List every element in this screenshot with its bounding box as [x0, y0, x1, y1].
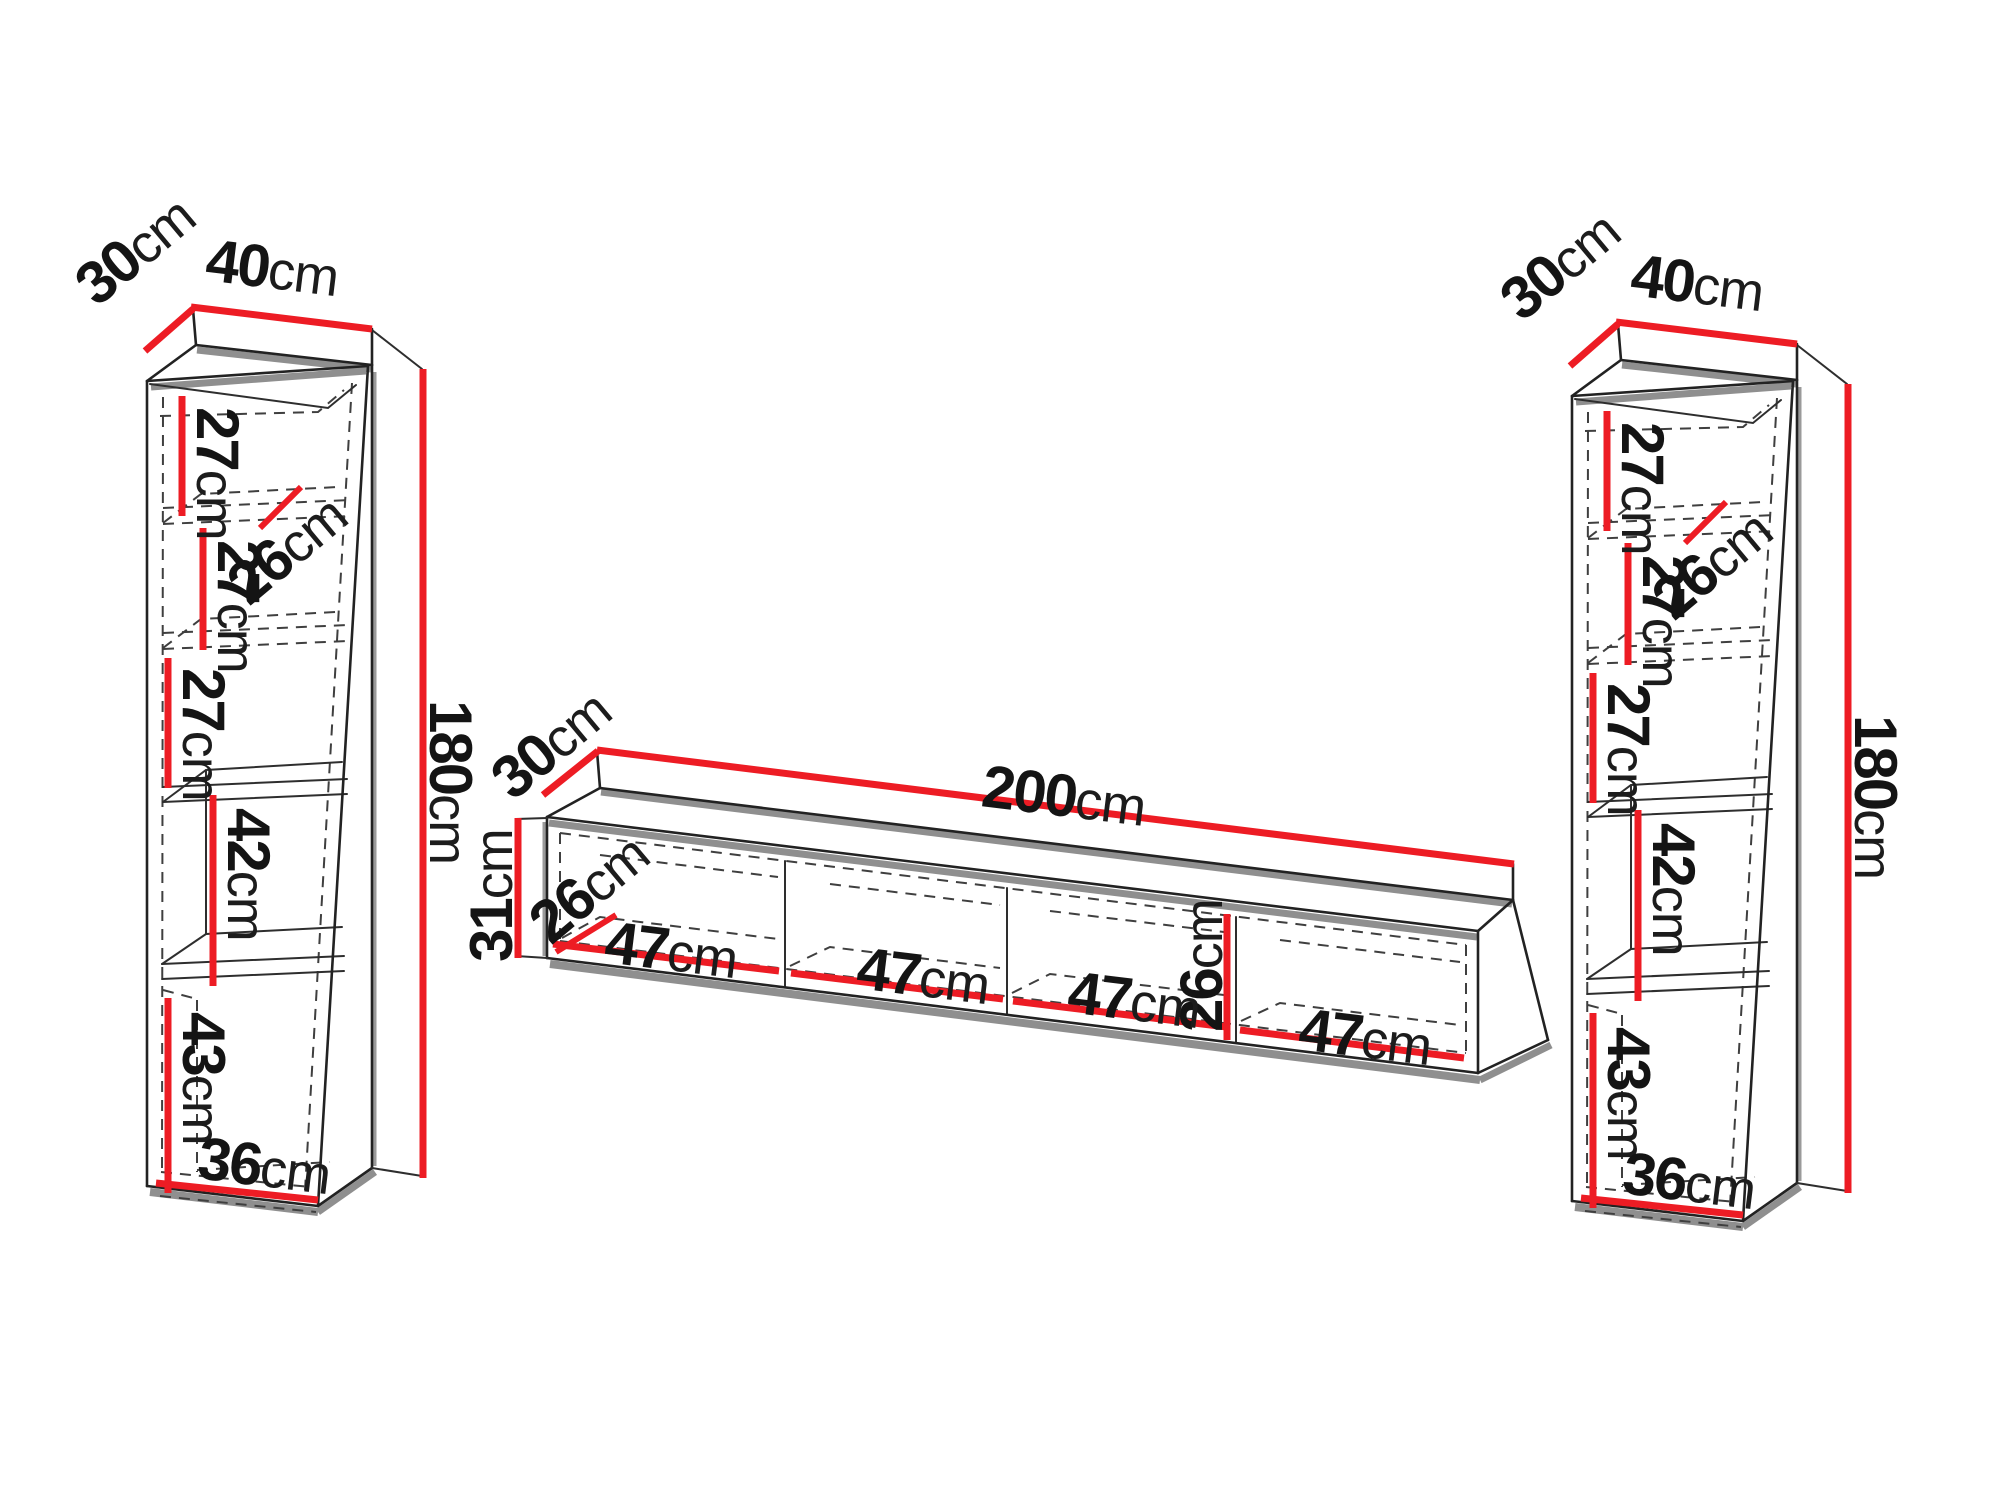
left-column-depth-dimension: 30cm	[62, 181, 207, 318]
right-column-niche-dimension: 42cm	[1640, 823, 1707, 956]
left-column: 30cm 40cm 180cm 27cm 26cm 27cm 27cm 42cm…	[62, 181, 484, 1212]
diagram-canvas: 30cm 40cm 180cm 27cm 26cm 27cm 27cm 42cm…	[0, 0, 2000, 1499]
right-column-shelf3-dimension: 27cm	[1595, 683, 1662, 816]
tv-stand-compartment1-dimension: 47cm	[601, 908, 741, 991]
left-column-width-dimension: 40cm	[202, 226, 342, 309]
left-column-shelf3-dimension: 27cm	[170, 668, 237, 801]
tv-stand: 30cm 200cm 31cm 26cm 26cm 47cm 47cm 47cm…	[458, 675, 1551, 1080]
tv-stand-width-dimension: 200cm	[978, 752, 1149, 838]
left-column-shelf1-dimension: 27cm	[184, 407, 251, 540]
right-column-height-dimension: 180cm	[1842, 715, 1909, 879]
left-column-niche-dimension: 42cm	[215, 808, 282, 941]
left-column-shelf2-dimension: 27cm	[205, 540, 272, 673]
right-column-shelf2-dimension: 27cm	[1630, 555, 1697, 688]
right-column: 30cm 40cm 180cm 27cm 26cm 27cm 27cm 42cm…	[1487, 196, 1909, 1227]
tv-stand-height-dimension: 31cm	[458, 829, 525, 962]
right-column-shelf1-dimension: 27cm	[1609, 422, 1676, 555]
right-column-width-dimension: 40cm	[1627, 241, 1767, 324]
furniture-dimension-diagram: 30cm 40cm 180cm 27cm 26cm 27cm 27cm 42cm…	[0, 0, 2000, 1499]
tv-stand-compartment4-dimension: 47cm	[1295, 995, 1435, 1078]
right-column-depth-dimension: 30cm	[1487, 196, 1632, 333]
